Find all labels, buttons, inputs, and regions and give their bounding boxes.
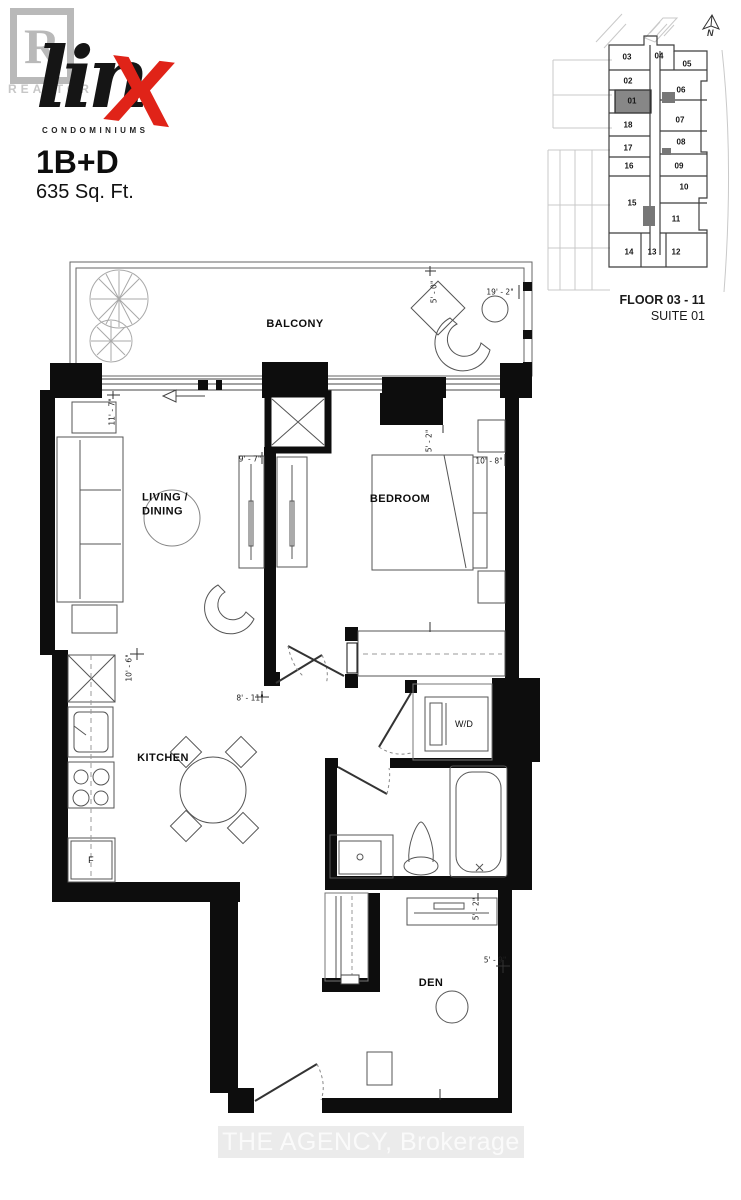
fridge-label: F: [88, 855, 94, 865]
keyplan-suite-14: 14: [625, 248, 634, 257]
keyplan-suite-13: 13: [648, 248, 657, 257]
keyplan-suite-03: 03: [623, 53, 632, 62]
keyplan-suite-label: SUITE 01: [651, 309, 705, 323]
keyplan-suite-02: 02: [624, 77, 633, 86]
brokerage-watermark: THE AGENCY, Brokerage: [218, 1126, 524, 1158]
room-label-bedroom: BEDROOM: [370, 493, 430, 505]
unit-type-title: 1B+D: [36, 144, 119, 181]
room-label-den: DEN: [419, 977, 443, 989]
keyplan-suite-18: 18: [624, 121, 633, 130]
keyplan-suite-12: 12: [672, 248, 681, 257]
keyplan-suite-05: 05: [683, 60, 692, 69]
tree-icons: [90, 270, 148, 362]
living-line2: DINING: [142, 505, 188, 519]
keyplan-suite-11: 11: [672, 215, 680, 224]
keyplan-suite-06: 06: [677, 86, 686, 95]
dim-kitchen-height: 10' - 6": [125, 654, 134, 681]
dim-closet-width: 9' - 7": [239, 455, 262, 464]
room-label-wd: W/D: [455, 719, 473, 729]
keyplan-suite-17: 17: [624, 144, 633, 153]
keyplan-suite-01: 01: [628, 97, 637, 106]
keyplan-floor-label: FLOOR 03 - 11: [620, 293, 705, 307]
north-arrow-icon: [703, 15, 719, 29]
keyplan-suite-10: 10: [680, 183, 689, 192]
dim-balcony-depth: 5' - 0": [430, 281, 439, 304]
dim-bedroom-width: 10' - 8": [475, 457, 502, 466]
dim-bedroom-nook: 5' - 2": [425, 430, 434, 453]
keyplan-suite-16: 16: [625, 162, 634, 171]
keyplan-suite-08: 08: [677, 138, 686, 147]
brand-subtitle: CONDOMINIUMS: [42, 126, 148, 135]
floorplan-page: { "header": { "realtor_r": "R", "realtor…: [0, 0, 741, 1200]
keyplan-suite-15: 15: [628, 199, 637, 208]
dim-hall-width: 8' - 11": [236, 694, 263, 703]
walls: [40, 362, 540, 1113]
living-line1: LIVING /: [142, 491, 188, 505]
keyplan-suite-04: 04: [655, 52, 664, 61]
keyplan-context: [548, 14, 729, 292]
room-label-kitchen: KITCHEN: [137, 752, 189, 764]
shaft-icon: [268, 394, 328, 450]
keyplan-suite-09: 09: [675, 162, 684, 171]
dim-living-height: 11' - 7": [108, 398, 117, 425]
dim-balcony-width: 19' - 2": [486, 288, 513, 297]
north-label: N: [707, 28, 714, 38]
room-label-balcony: BALCONY: [266, 318, 323, 330]
dim-den-width: 5' - 9": [484, 956, 507, 965]
unit-area: 635 Sq. Ft.: [36, 181, 134, 204]
keyplan-suite-07: 07: [676, 116, 685, 125]
room-label-living-dining: LIVING / DINING: [142, 491, 188, 519]
dim-den-desk: 5' - 2": [472, 898, 481, 921]
